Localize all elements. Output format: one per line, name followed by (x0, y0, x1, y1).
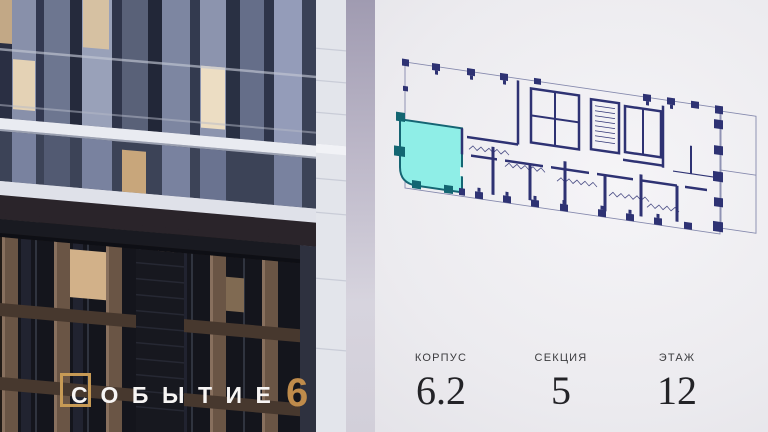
stat-etazh-label: ЭТАЖ (625, 352, 729, 364)
plan-walls (462, 72, 718, 227)
floor-plan-panel: КОРПУС 6.2 СЕКЦИЯ 5 ЭТАЖ 12 (375, 0, 768, 432)
unit-stats: КОРПУС 6.2 СЕКЦИЯ 5 ЭТАЖ 12 (375, 352, 768, 418)
stat-etazh-value: 12 (625, 371, 729, 411)
logo: СОБЫТИЕ 6 (60, 371, 320, 416)
stat-sektsiya-label: СЕКЦИЯ (509, 352, 613, 364)
selected-unit-highlight[interactable] (400, 119, 462, 192)
stat-korpus-label: КОРПУС (389, 352, 493, 364)
building-facade (0, 0, 346, 432)
stat-korpus: КОРПУС 6.2 (389, 352, 493, 411)
logo-wordmark: СОБЫТИЕ (71, 384, 284, 407)
stat-sektsiya: СЕКЦИЯ 5 (509, 352, 613, 411)
stat-etazh: ЭТАЖ 12 (625, 352, 729, 411)
stat-sektsiya-value: 5 (509, 371, 613, 411)
unit-door-gap (460, 167, 464, 177)
logo-number: 6 (286, 373, 308, 413)
page: СОБЫТИЕ 6 (0, 0, 768, 432)
building-render-image (0, 0, 375, 432)
building-photo-panel: СОБЫТИЕ 6 (0, 0, 375, 432)
stat-korpus-value: 6.2 (389, 371, 493, 411)
stair-hatch (595, 106, 615, 144)
